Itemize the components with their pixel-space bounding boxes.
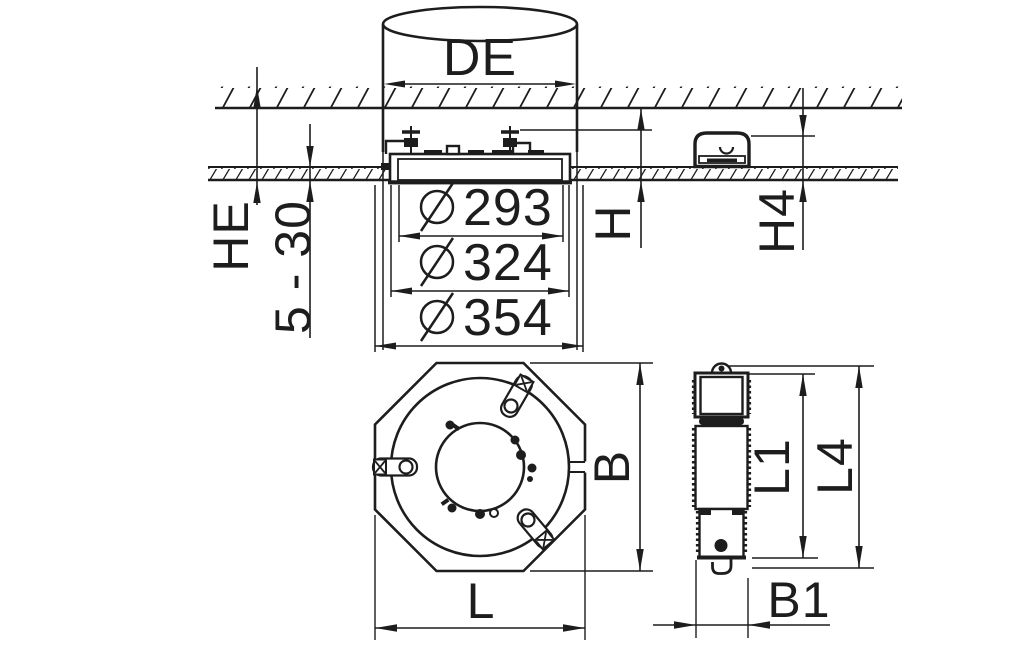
de-label: DE (443, 29, 517, 87)
diameter-symbol-icon (421, 238, 453, 286)
top-lug (447, 146, 459, 154)
arrowhead-left-icon (375, 343, 396, 350)
body-middle (696, 426, 748, 509)
technical-drawing-canvas: DE (0, 0, 1024, 645)
ceiling-thickness-label: 5 - 30 (265, 200, 321, 334)
arrowhead-left-icon (399, 233, 420, 240)
clip-screw-hole (400, 461, 413, 474)
arrowhead-down-icon (306, 146, 313, 167)
arrowhead-up-icon (253, 182, 260, 203)
dimension-b1: B1 (653, 560, 831, 638)
h-label: H (585, 204, 641, 241)
arrowhead-down-icon (636, 549, 643, 571)
arrowhead-right-icon (562, 343, 583, 350)
driver-box (695, 133, 749, 167)
arrowhead-up-icon (799, 374, 806, 396)
section-view: DE (203, 7, 902, 352)
arrowhead-down-icon (799, 115, 806, 136)
divider-band (699, 418, 744, 426)
arrowhead-left-icon (391, 288, 412, 295)
side-view: L1 L4 B1 (653, 364, 874, 639)
arrowhead-down-icon (799, 536, 806, 558)
dimension-dia-354: 354 (375, 289, 583, 350)
mounting-hook (713, 559, 732, 574)
dia-293-value: 293 (463, 179, 553, 237)
arrowhead-up-icon (636, 363, 643, 385)
arrowhead-left-icon (375, 624, 397, 631)
arrowhead-up-icon (306, 181, 313, 202)
light-aperture (436, 423, 524, 511)
cable-gland (715, 539, 728, 552)
dimension-ceiling-thickness: 5 - 30 (265, 124, 321, 338)
gear-body (695, 373, 748, 574)
l4-label: L4 (807, 437, 863, 495)
b-label: B (584, 450, 640, 484)
arrowhead-left-icon (384, 81, 405, 88)
arrowhead-up-icon (637, 109, 644, 130)
dimension-dia-293: 293 (399, 179, 563, 240)
arrowhead-up-icon (637, 181, 644, 202)
left-clamp (386, 126, 420, 154)
arrowhead-right-icon (674, 621, 696, 628)
plan-view: B L (373, 363, 653, 640)
diameter-symbol-icon (421, 183, 453, 231)
mounting-clip-left (373, 459, 417, 476)
b1-label: B1 (767, 572, 830, 628)
dia-324-value: 324 (463, 234, 553, 292)
luminaire-body (381, 126, 572, 183)
arrowhead-down-icon (855, 546, 862, 568)
slab-hatching (215, 87, 902, 108)
dia-354-value: 354 (463, 289, 553, 347)
dimension-dia-324: 324 (391, 234, 569, 295)
arrowhead-right-icon (563, 624, 585, 631)
h4-label: H4 (749, 188, 805, 254)
he-label: HE (203, 200, 259, 271)
arrowhead-right-icon (555, 81, 576, 88)
dimension-drawing: DE (0, 0, 1024, 645)
diameter-symbol-icon (421, 293, 453, 341)
l-label: L (467, 573, 496, 629)
arrowhead-up-icon (855, 366, 862, 388)
dimension-de: DE (384, 29, 576, 88)
l1-label: L1 (744, 438, 800, 496)
